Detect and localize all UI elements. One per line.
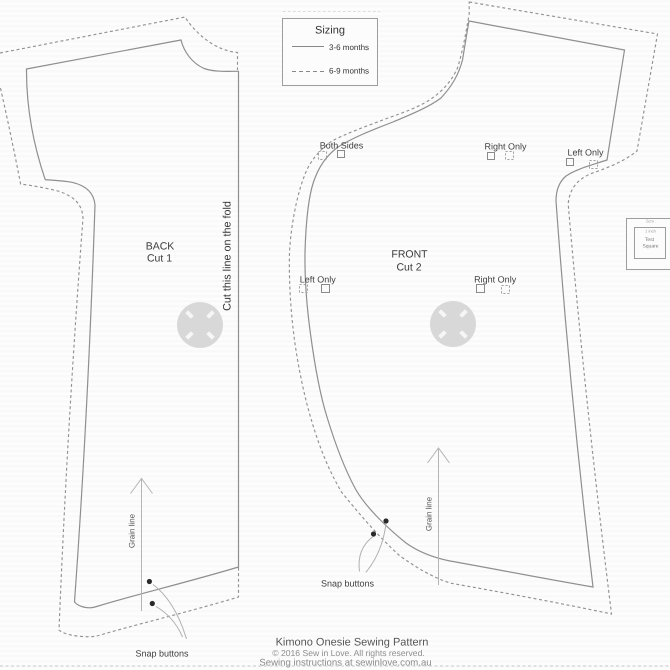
svg-text:Square: Square [642,244,658,250]
svg-text:Grain line: Grain line [128,513,137,548]
svg-text:Kimono Onesie Sewing Pattern: Kimono Onesie Sewing Pattern [276,637,429,649]
svg-text:5cm: 5cm [646,219,654,224]
svg-text:Grain line: Grain line [425,496,434,531]
svg-text:1 inch: 1 inch [645,229,656,234]
svg-text:Test: Test [645,237,655,243]
svg-text:Cut 2: Cut 2 [396,262,421,274]
svg-text:Sizing: Sizing [315,25,345,37]
svg-text:FRONT: FRONT [391,249,428,261]
svg-text:Cut 1: Cut 1 [147,253,172,265]
svg-text:Right Only: Right Only [484,142,527,152]
svg-text:Right Only: Right Only [474,274,517,284]
svg-text:Cut this line on the fold: Cut this line on the fold [222,201,234,311]
svg-text:Left Only: Left Only [300,274,337,284]
svg-text:Sewing instructions at sewinlo: Sewing instructions at sewinlove.com.au [259,658,431,669]
svg-text:6-9 months: 6-9 months [329,67,369,76]
svg-text:Snap buttons: Snap buttons [135,649,189,659]
svg-text:Snap buttons: Snap buttons [321,579,375,589]
svg-text:3-6 months: 3-6 months [329,43,369,52]
svg-text:Left Only: Left Only [567,148,604,158]
svg-text:BACK: BACK [146,241,175,253]
svg-text:© 2016 Sew in Love. All rights: © 2016 Sew in Love. All rights reserved. [272,648,425,658]
svg-text:Both Sides: Both Sides [320,141,364,151]
